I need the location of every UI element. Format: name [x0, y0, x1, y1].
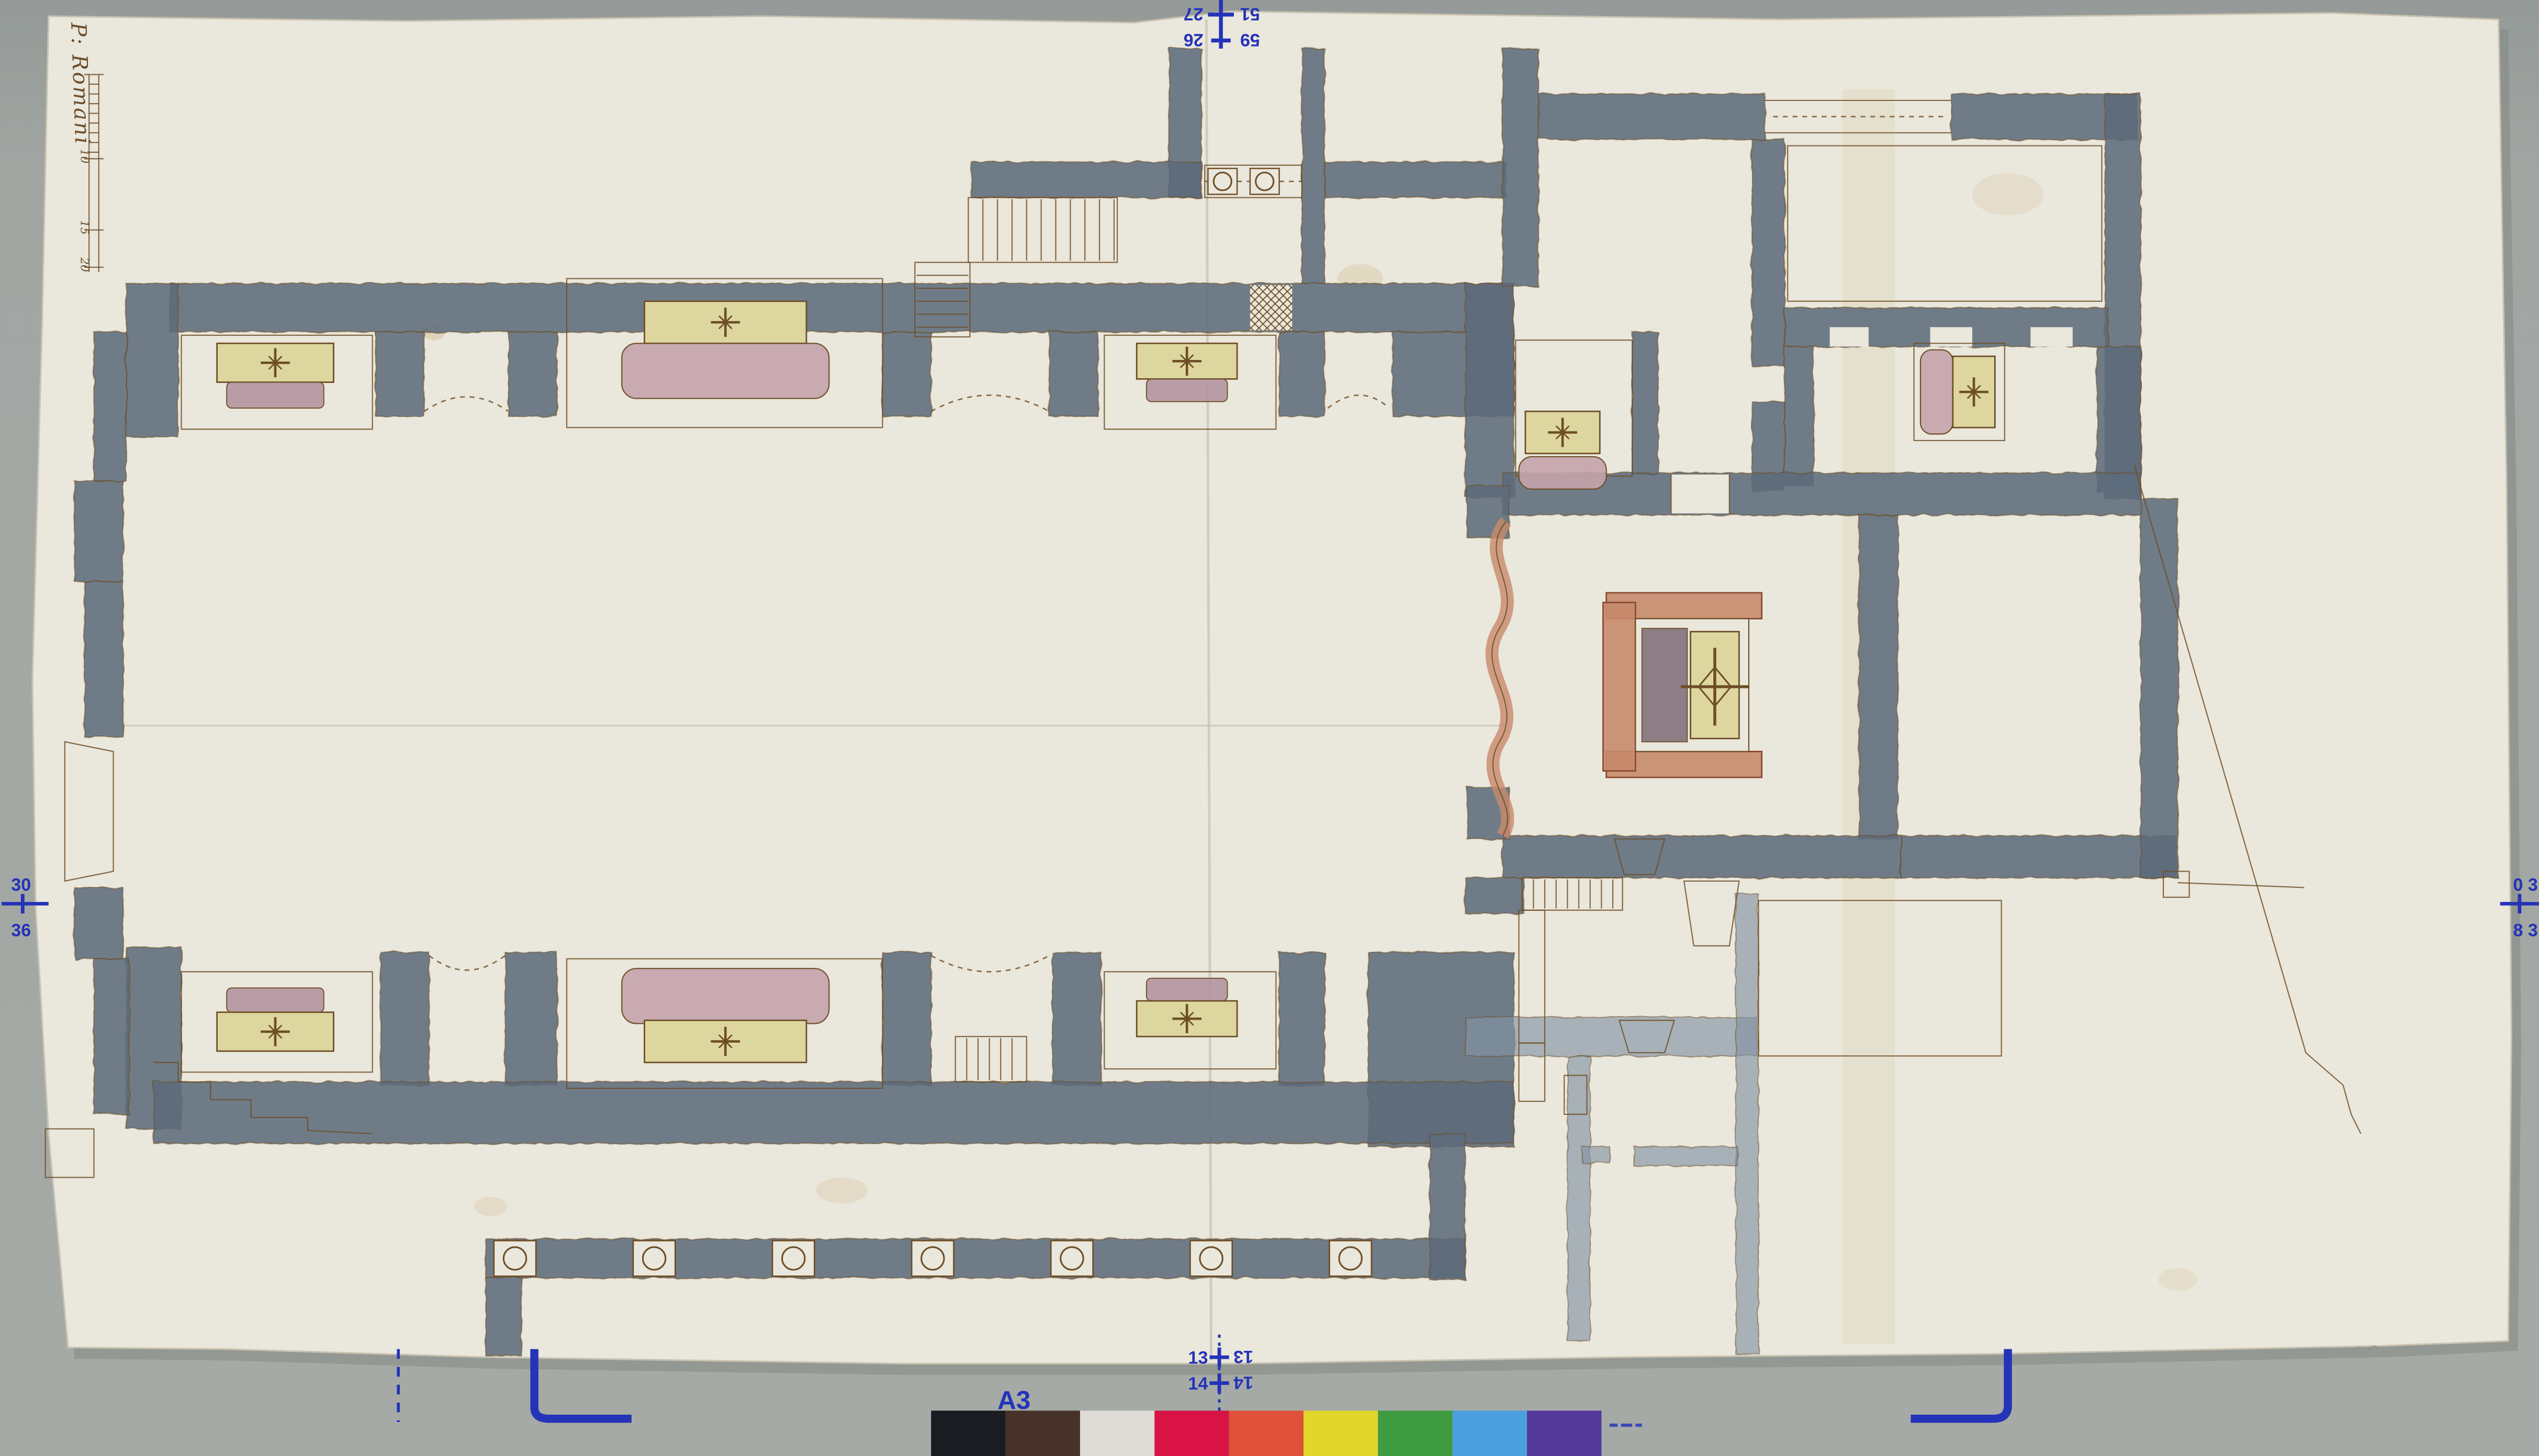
color-patch-light-blue [1453, 1410, 1527, 1456]
scan-backdrop: 10 15 20 P: Romani 27 51 26 59 30 36 0 3… [0, 0, 2539, 1456]
sheet-label: A3 [997, 1386, 1030, 1415]
tiny-print-mark [1610, 1424, 1642, 1427]
svg-text:8 3: 8 3 [2513, 920, 2537, 940]
scanned-drawing: 10 15 20 P: Romani 27 51 26 59 30 36 0 3… [0, 0, 2539, 1456]
altar-step [227, 988, 324, 1012]
column [1051, 1240, 1093, 1276]
svg-text:36: 36 [11, 920, 31, 940]
svg-text:27: 27 [1184, 4, 1204, 24]
altar-steps-slab [1642, 628, 1688, 742]
south-wall [154, 1082, 1514, 1144]
north-threshold-hatch [1250, 285, 1292, 331]
color-patch-black [931, 1410, 1005, 1456]
svg-text:14: 14 [1188, 1374, 1208, 1394]
scale-tick-label: 10 [78, 149, 91, 164]
color-patch-purple [1527, 1410, 1601, 1456]
color-patch-green [1378, 1410, 1452, 1456]
east-wall-lower [2141, 499, 2178, 877]
altar-canopy [1920, 350, 1953, 434]
altar-step [227, 382, 324, 409]
north-wall [170, 284, 1514, 332]
altar-room-south-wall [1503, 836, 1901, 877]
column [772, 1240, 814, 1276]
scale-tick-label: 20 [78, 257, 91, 272]
color-patch-yellow [1304, 1410, 1378, 1456]
svg-text:26: 26 [1184, 30, 1204, 50]
svg-text:51: 51 [1240, 4, 1260, 24]
altar-canopy [622, 343, 829, 398]
nave-ne-corner [1465, 284, 1514, 498]
color-calibration-bar [931, 1410, 1642, 1456]
svg-text:13: 13 [1233, 1347, 1253, 1367]
inscription: P: Romani [66, 21, 94, 146]
svg-text:0 3: 0 3 [2513, 875, 2537, 895]
altar-step [1147, 379, 1228, 401]
svg-text:13: 13 [1188, 1348, 1208, 1368]
scale-tick-label: 15 [78, 220, 91, 235]
west-facade [94, 332, 126, 481]
column [1329, 1240, 1371, 1276]
altar-canopy [622, 968, 829, 1023]
column [494, 1240, 536, 1276]
svg-text:59: 59 [1240, 30, 1260, 50]
altar-step [1519, 457, 1606, 489]
altar-step [1147, 978, 1228, 1001]
color-patch-dark-brown [1006, 1410, 1080, 1456]
column [912, 1240, 953, 1276]
main-altar [1603, 593, 1761, 777]
color-patch-crimson [1154, 1410, 1229, 1456]
lower-room-wall [1465, 1017, 1757, 1056]
color-patch-vermilion [1229, 1410, 1304, 1456]
svg-text:14: 14 [1233, 1372, 1253, 1392]
column [1190, 1240, 1232, 1276]
right-chapel [1914, 343, 2005, 441]
column [633, 1240, 675, 1276]
sacristy-north-wall [1538, 94, 1765, 140]
svg-text:30: 30 [11, 875, 31, 895]
altar-room-east-wall [1859, 515, 1897, 839]
color-patch-white [1080, 1410, 1154, 1456]
